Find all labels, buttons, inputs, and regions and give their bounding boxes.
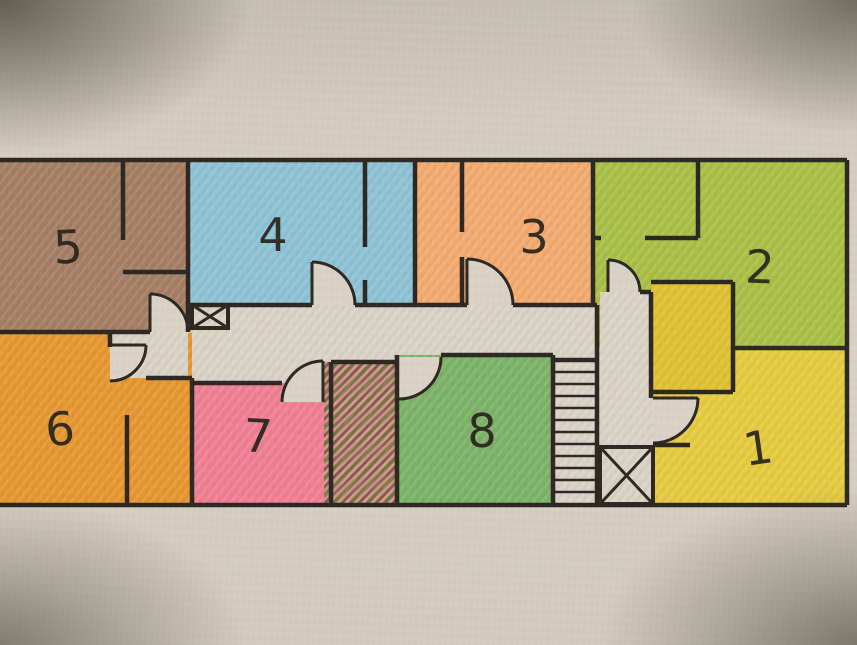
floor-plan-drawing: 5 4 3 2 1 6 7 8 xyxy=(0,0,857,645)
room-2-label: 2 xyxy=(744,240,775,295)
room-5-label: 5 xyxy=(52,219,84,274)
room-3-label: 3 xyxy=(519,210,548,264)
room-6-label: 6 xyxy=(43,401,77,457)
room-4-label: 4 xyxy=(258,208,287,262)
floor-plan-photo: 5 4 3 2 1 6 7 8 xyxy=(0,0,857,645)
room-7-label: 7 xyxy=(242,408,274,463)
room-8-label: 8 xyxy=(467,404,496,458)
